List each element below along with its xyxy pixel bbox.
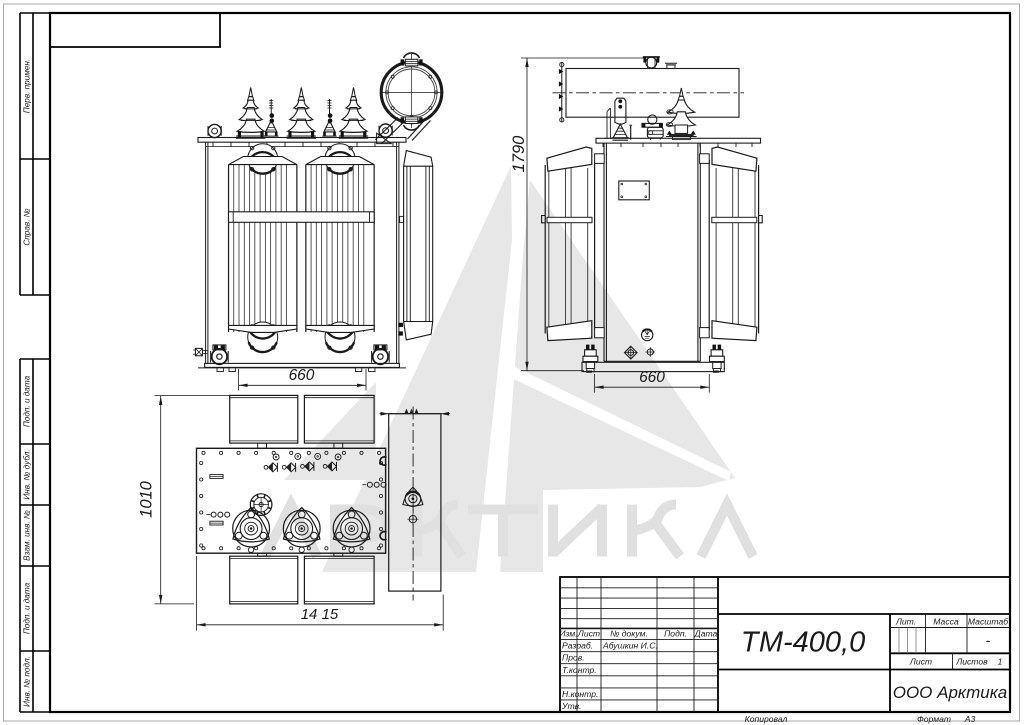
svg-text:Справ. №: Справ. №	[23, 208, 32, 245]
svg-text:Н.контр.: Н.контр.	[562, 689, 598, 699]
svg-text:Т.контр.: Т.контр.	[562, 665, 597, 675]
svg-text:Подп. и дата: Подп. и дата	[23, 582, 32, 634]
svg-text:Масса: Масса	[933, 617, 959, 627]
svg-text:660: 660	[639, 369, 665, 386]
svg-text:Подп.: Подп.	[664, 629, 687, 639]
svg-text:-: -	[986, 632, 991, 648]
svg-text:Перв. примен.: Перв. примен.	[23, 59, 32, 113]
svg-text:1010: 1010	[138, 480, 156, 518]
svg-text:Дата: Дата	[694, 629, 718, 639]
svg-text:660: 660	[289, 367, 315, 384]
svg-text:Масштаб: Масштаб	[968, 617, 1009, 627]
svg-text:Копировал: Копировал	[745, 714, 788, 724]
svg-text:1790: 1790	[510, 135, 528, 173]
svg-text:Инв. № подл.: Инв. № подл.	[23, 656, 32, 707]
svg-text:А3: А3	[964, 714, 976, 724]
svg-text:Листов: Листов	[955, 657, 988, 667]
svg-text:Формат: Формат	[917, 714, 951, 724]
svg-text:Подп. и дата: Подп. и дата	[23, 375, 32, 427]
svg-text:ООО Арктика: ООО Арктика	[893, 683, 1008, 702]
svg-text:Разраб.: Разраб.	[562, 641, 593, 651]
svg-text:№ докум.: № докум.	[610, 629, 648, 639]
svg-text:ТМ-400,0: ТМ-400,0	[741, 627, 865, 659]
svg-text:Лист: Лист	[909, 657, 932, 667]
svg-text:Инв. № дубл.: Инв. № дубл.	[23, 449, 32, 499]
svg-text:Абушкин И.С.: Абушкин И.С.	[602, 641, 658, 651]
svg-text:Утв.: Утв.	[561, 701, 582, 711]
svg-text:14 15: 14 15	[301, 606, 339, 623]
svg-text:Пров.: Пров.	[562, 653, 585, 663]
svg-text:Лит.: Лит.	[895, 617, 916, 627]
svg-text:Изм.: Изм.	[559, 629, 577, 639]
svg-text:Взам. инв. №: Взам. инв. №	[23, 510, 32, 561]
svg-text:Лист: Лист	[577, 629, 600, 639]
svg-text:1: 1	[998, 657, 1003, 667]
